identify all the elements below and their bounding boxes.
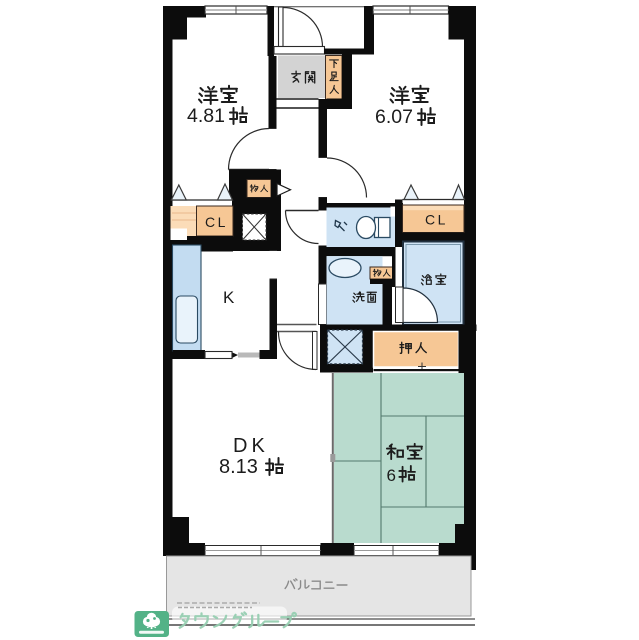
svg-text:8.13: 8.13	[219, 456, 258, 478]
svg-text:6.07: 6.07	[375, 106, 413, 128]
svg-text:CL: CL	[205, 214, 228, 230]
svg-text:4.81: 4.81	[187, 105, 225, 127]
svg-text:DK: DK	[233, 435, 269, 457]
svg-text:K: K	[223, 288, 235, 307]
svg-text:CL: CL	[425, 212, 448, 228]
svg-text:6: 6	[387, 466, 396, 485]
